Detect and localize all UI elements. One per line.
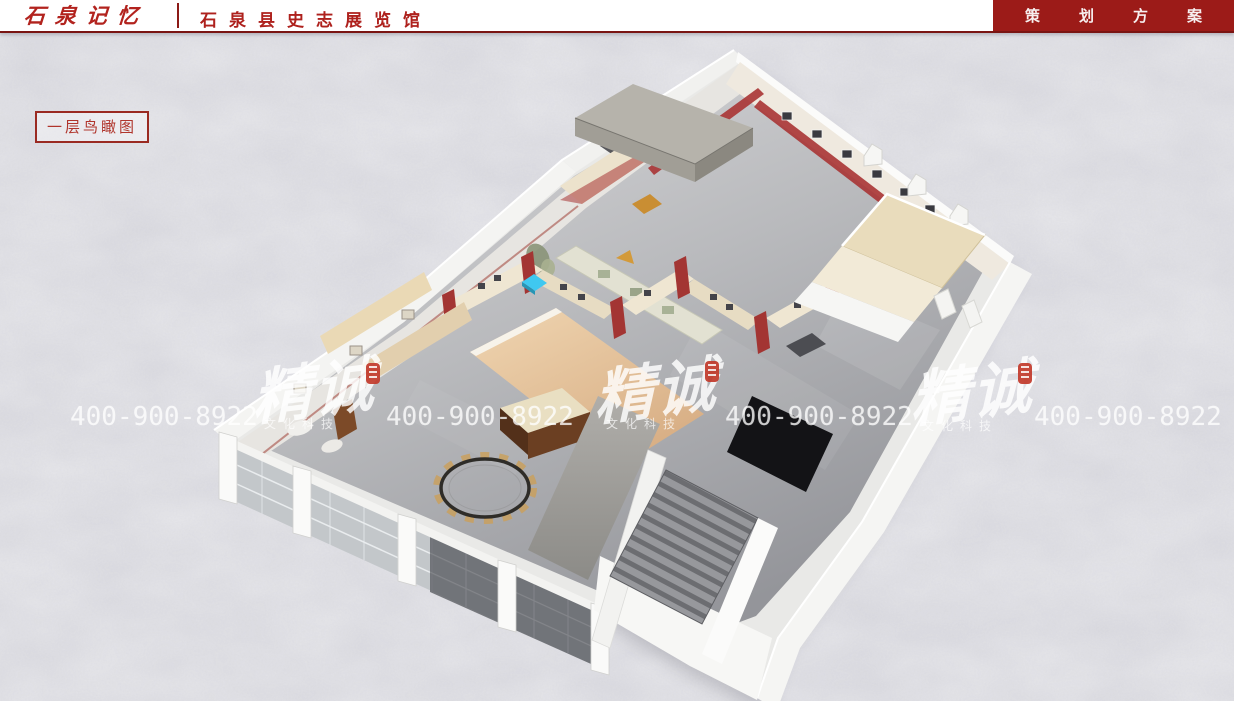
plan-menu-button[interactable]: 策划方案: [993, 0, 1234, 31]
exhibition-3d-render: 精诚 文化科技 精诚 文化科技 精诚 文化科技 400-900-8922 400…: [0, 33, 1234, 701]
watermark-phone: 400-900-8922: [70, 402, 258, 432]
red-seal-icon: [366, 363, 380, 384]
site-logo: 石泉记忆: [23, 3, 149, 29]
watermark-phone: 400-900-8922: [386, 402, 574, 432]
plan-menu-label: 策划方案: [1025, 5, 1234, 26]
top-header: 石泉记忆 石泉县史志展览馆 策划方案: [0, 0, 1234, 33]
header-divider: [177, 3, 179, 28]
watermark-phone: 400-900-8922: [1034, 402, 1222, 432]
site-title: 石泉县史志展览馆: [200, 6, 432, 31]
red-seal-icon: [1018, 363, 1032, 384]
red-seal-icon: [705, 361, 719, 382]
watermark-phone: 400-900-8922: [725, 402, 913, 432]
view-label: 一层鸟瞰图: [35, 111, 149, 143]
